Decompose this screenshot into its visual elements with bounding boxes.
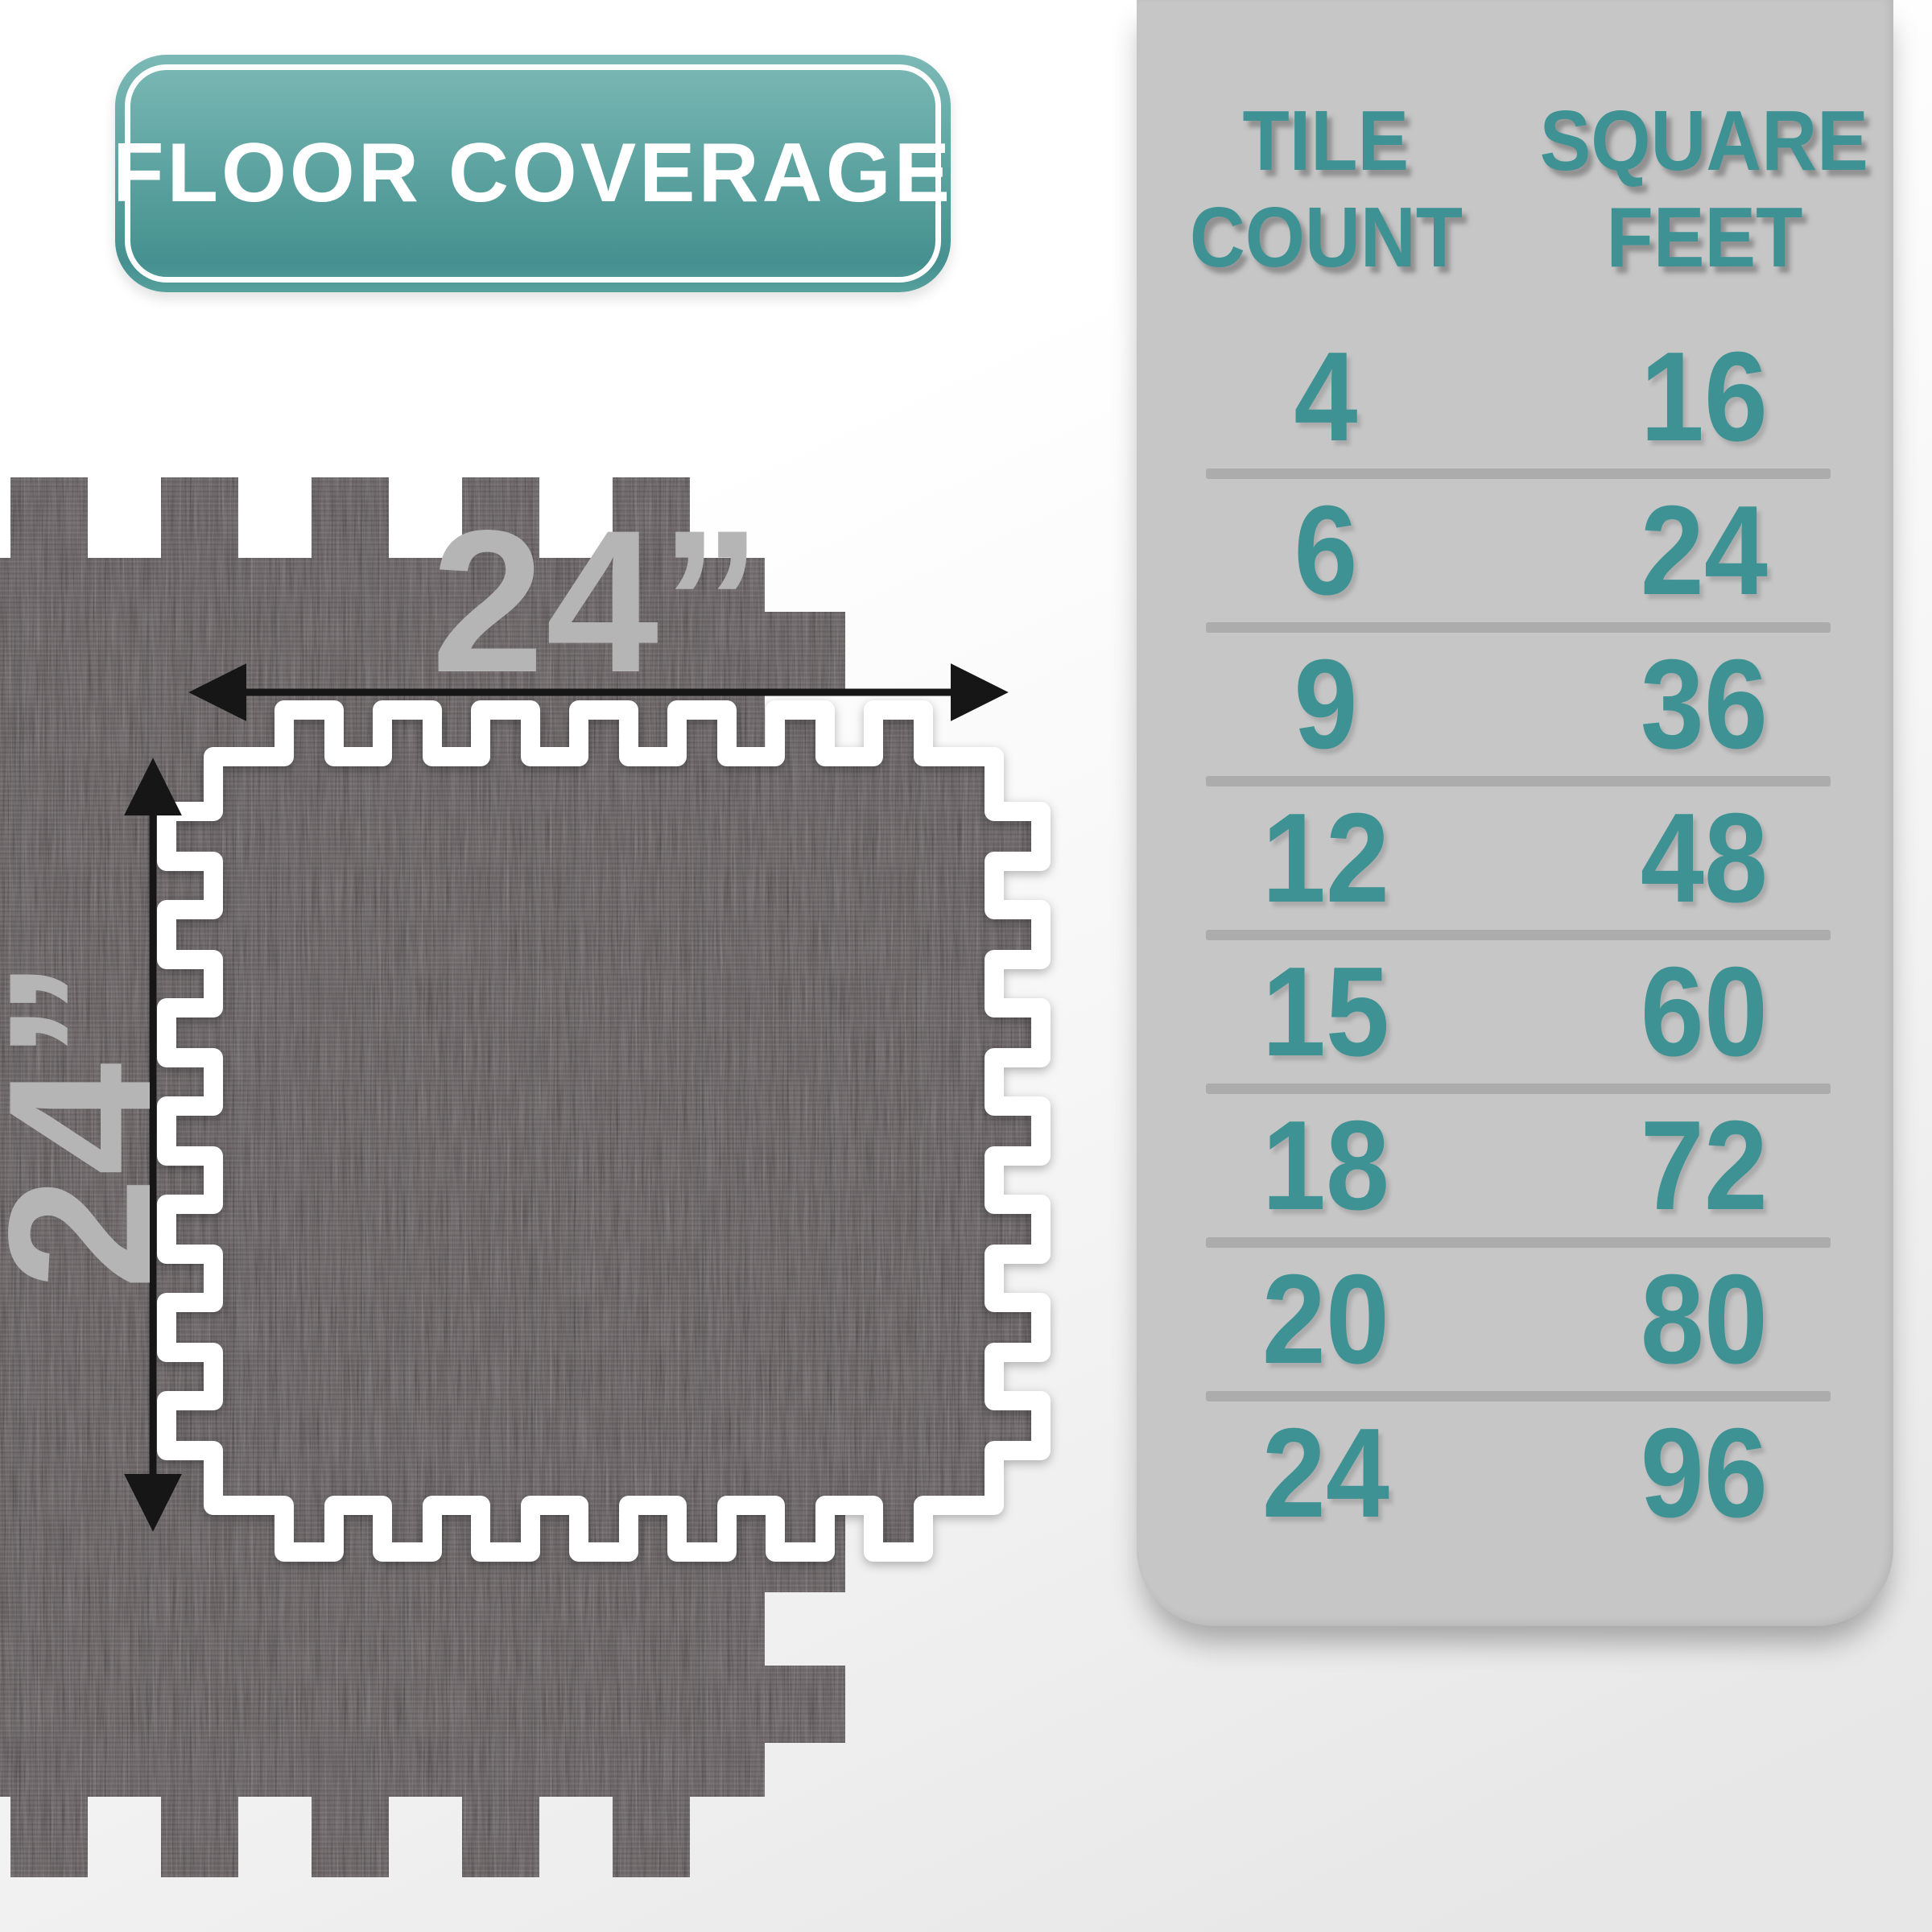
tile-count-cell: 9 <box>1137 632 1515 778</box>
square-feet-header: SQUARE FEET <box>1515 93 1893 287</box>
width-label: 24” <box>431 501 763 704</box>
coverage-panel: TILE COUNT SQUARE FEET 4 16 6 24 9 36 <box>1137 0 1893 1626</box>
tile-count-cell: 4 <box>1137 324 1515 470</box>
coverage-table: 4 16 6 24 9 36 12 48 15 60 <box>1137 325 1893 1545</box>
table-row: 18 72 <box>1137 1094 1893 1237</box>
tile-count-cell: 15 <box>1137 939 1515 1085</box>
tile-count-header: TILE COUNT <box>1137 93 1515 287</box>
table-row: 12 48 <box>1137 786 1893 930</box>
square-feet-cell: 96 <box>1515 1401 1893 1546</box>
floor-coverage-infographic: FLOOR COVERAGE <box>0 0 1932 1932</box>
height-label: 24” <box>0 958 182 1290</box>
tile-count-cell: 24 <box>1137 1401 1515 1546</box>
square-feet-cell: 60 <box>1515 939 1893 1085</box>
square-feet-cell: 36 <box>1515 632 1893 778</box>
table-headers: TILE COUNT SQUARE FEET <box>1137 93 1893 287</box>
tile-count-cell: 20 <box>1137 1247 1515 1393</box>
square-feet-cell: 80 <box>1515 1247 1893 1393</box>
tile-count-cell: 6 <box>1137 478 1515 624</box>
square-feet-cell: 72 <box>1515 1093 1893 1239</box>
table-row: 24 96 <box>1137 1402 1893 1545</box>
table-row: 4 16 <box>1137 325 1893 469</box>
square-feet-cell: 24 <box>1515 478 1893 624</box>
front-tile-texture <box>145 692 1063 1578</box>
table-row: 6 24 <box>1137 479 1893 622</box>
table-row: 9 36 <box>1137 633 1893 776</box>
tile-count-cell: 12 <box>1137 786 1515 931</box>
square-feet-cell: 16 <box>1515 324 1893 470</box>
table-row: 20 80 <box>1137 1248 1893 1391</box>
tile-count-cell: 18 <box>1137 1093 1515 1239</box>
square-feet-cell: 48 <box>1515 786 1893 931</box>
table-row: 15 60 <box>1137 940 1893 1084</box>
